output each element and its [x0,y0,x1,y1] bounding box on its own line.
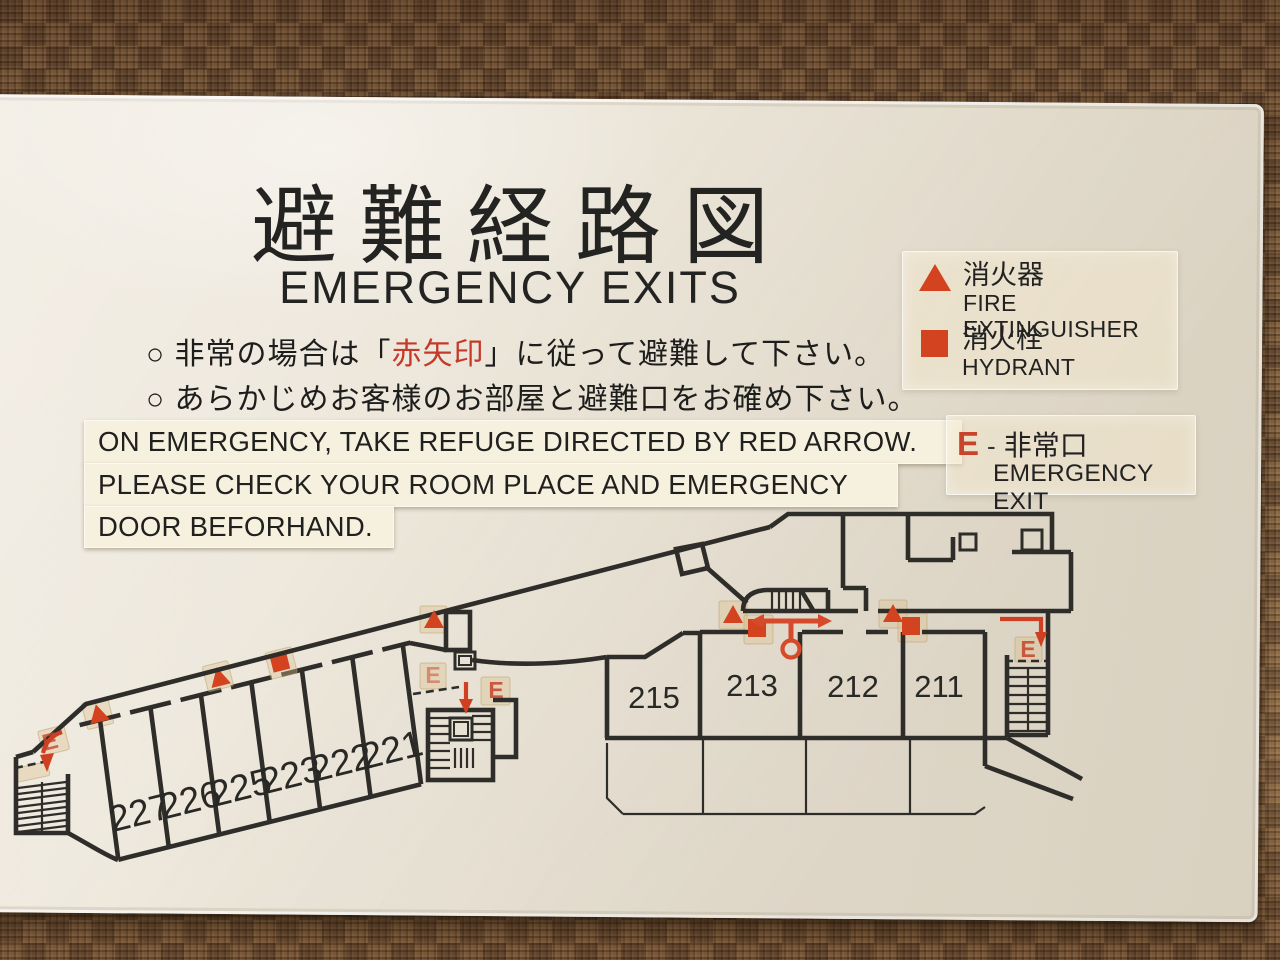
upper-interior-a [843,514,866,611]
junction-lower-wall [472,657,607,664]
room-front-wall [683,632,985,633]
exit-marker-E: E [1020,636,1035,662]
end-block-side-room [493,700,516,757]
exit-door-dashes [15,661,1050,768]
hydrant-marker [902,617,920,635]
end-block-connect [410,643,446,650]
left-bottom-connect [68,833,118,860]
upper-right-step [1012,552,1071,611]
room-label: 212 [827,669,879,704]
junction-diagonal [705,566,747,603]
floorplan: 227 226 225 223 222 221 [0,0,1280,960]
upper-outline [770,514,1052,552]
exit-marker-E: E [488,677,503,703]
escape-arrow [1000,619,1041,633]
exit-marker-E: E [425,662,440,688]
position-circle [783,641,800,658]
room-label: 211 [914,669,963,704]
upper-interior-b [908,514,953,560]
right-bottom-diagonals [985,738,1082,799]
end-stair-block [428,710,493,780]
left-wing: 227 226 225 223 222 221 [73,616,444,861]
right-wing-room-labels: 215 213 212 211 [628,668,964,715]
room-label: 215 [628,680,680,715]
right-arrow-head [818,614,832,628]
marker-sticker-pads [14,600,1042,782]
terrace-row [607,738,985,814]
outer-corridor-wall [33,527,770,752]
room-label: 221 [357,722,427,777]
red-markers [40,604,1047,772]
room-label: 213 [726,668,778,703]
shaft [446,612,470,650]
